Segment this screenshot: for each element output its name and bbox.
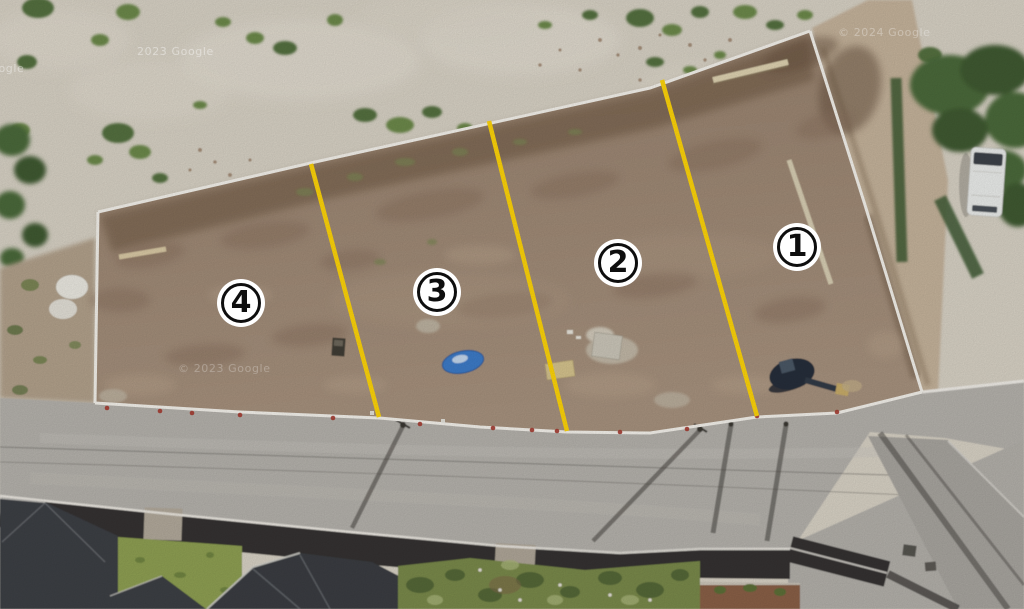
plot-marker-2-ring: 2 (598, 243, 638, 283)
plot-marker-1: 1 (773, 223, 821, 271)
plot-marker-4-label: 4 (231, 288, 252, 318)
terrain-art (0, 0, 1024, 609)
plot-marker-3-label: 3 (427, 277, 448, 307)
photo-grain (0, 0, 1024, 609)
plot-marker-2: 2 (594, 239, 642, 287)
plot-marker-1-ring: 1 (777, 227, 817, 267)
aerial-photo: 1 2 3 4 2023 Google Google © 2024 Google… (0, 0, 1024, 609)
plot-marker-4-ring: 4 (221, 283, 261, 323)
plot-marker-3-ring: 3 (417, 272, 457, 312)
plot-marker-1-label: 1 (787, 232, 808, 262)
plot-marker-2-label: 2 (608, 248, 629, 278)
plot-marker-4: 4 (217, 279, 265, 327)
plot-marker-3: 3 (413, 268, 461, 316)
